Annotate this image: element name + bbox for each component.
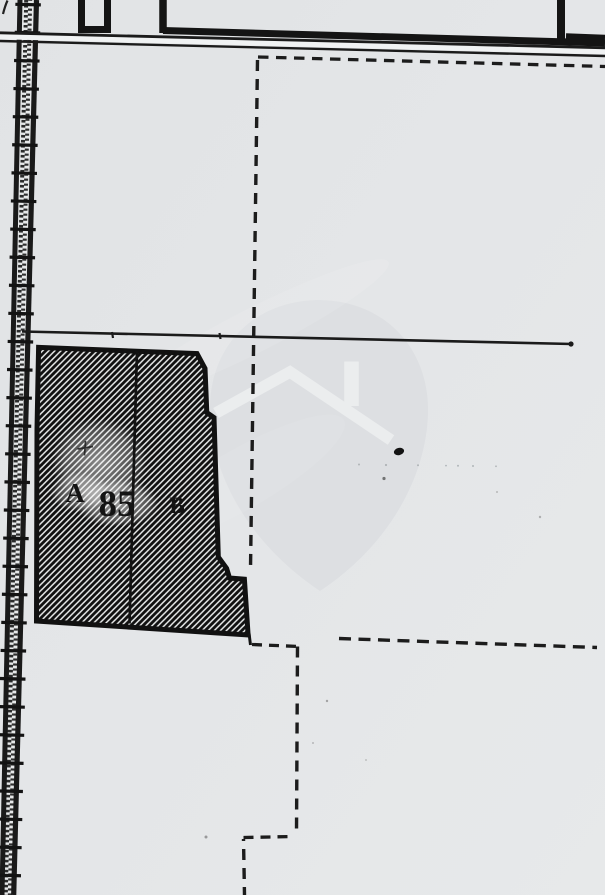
svg-text:A: A (65, 478, 85, 508)
svg-text:85: 85 (99, 484, 136, 525)
svg-text:B: B (169, 493, 184, 518)
